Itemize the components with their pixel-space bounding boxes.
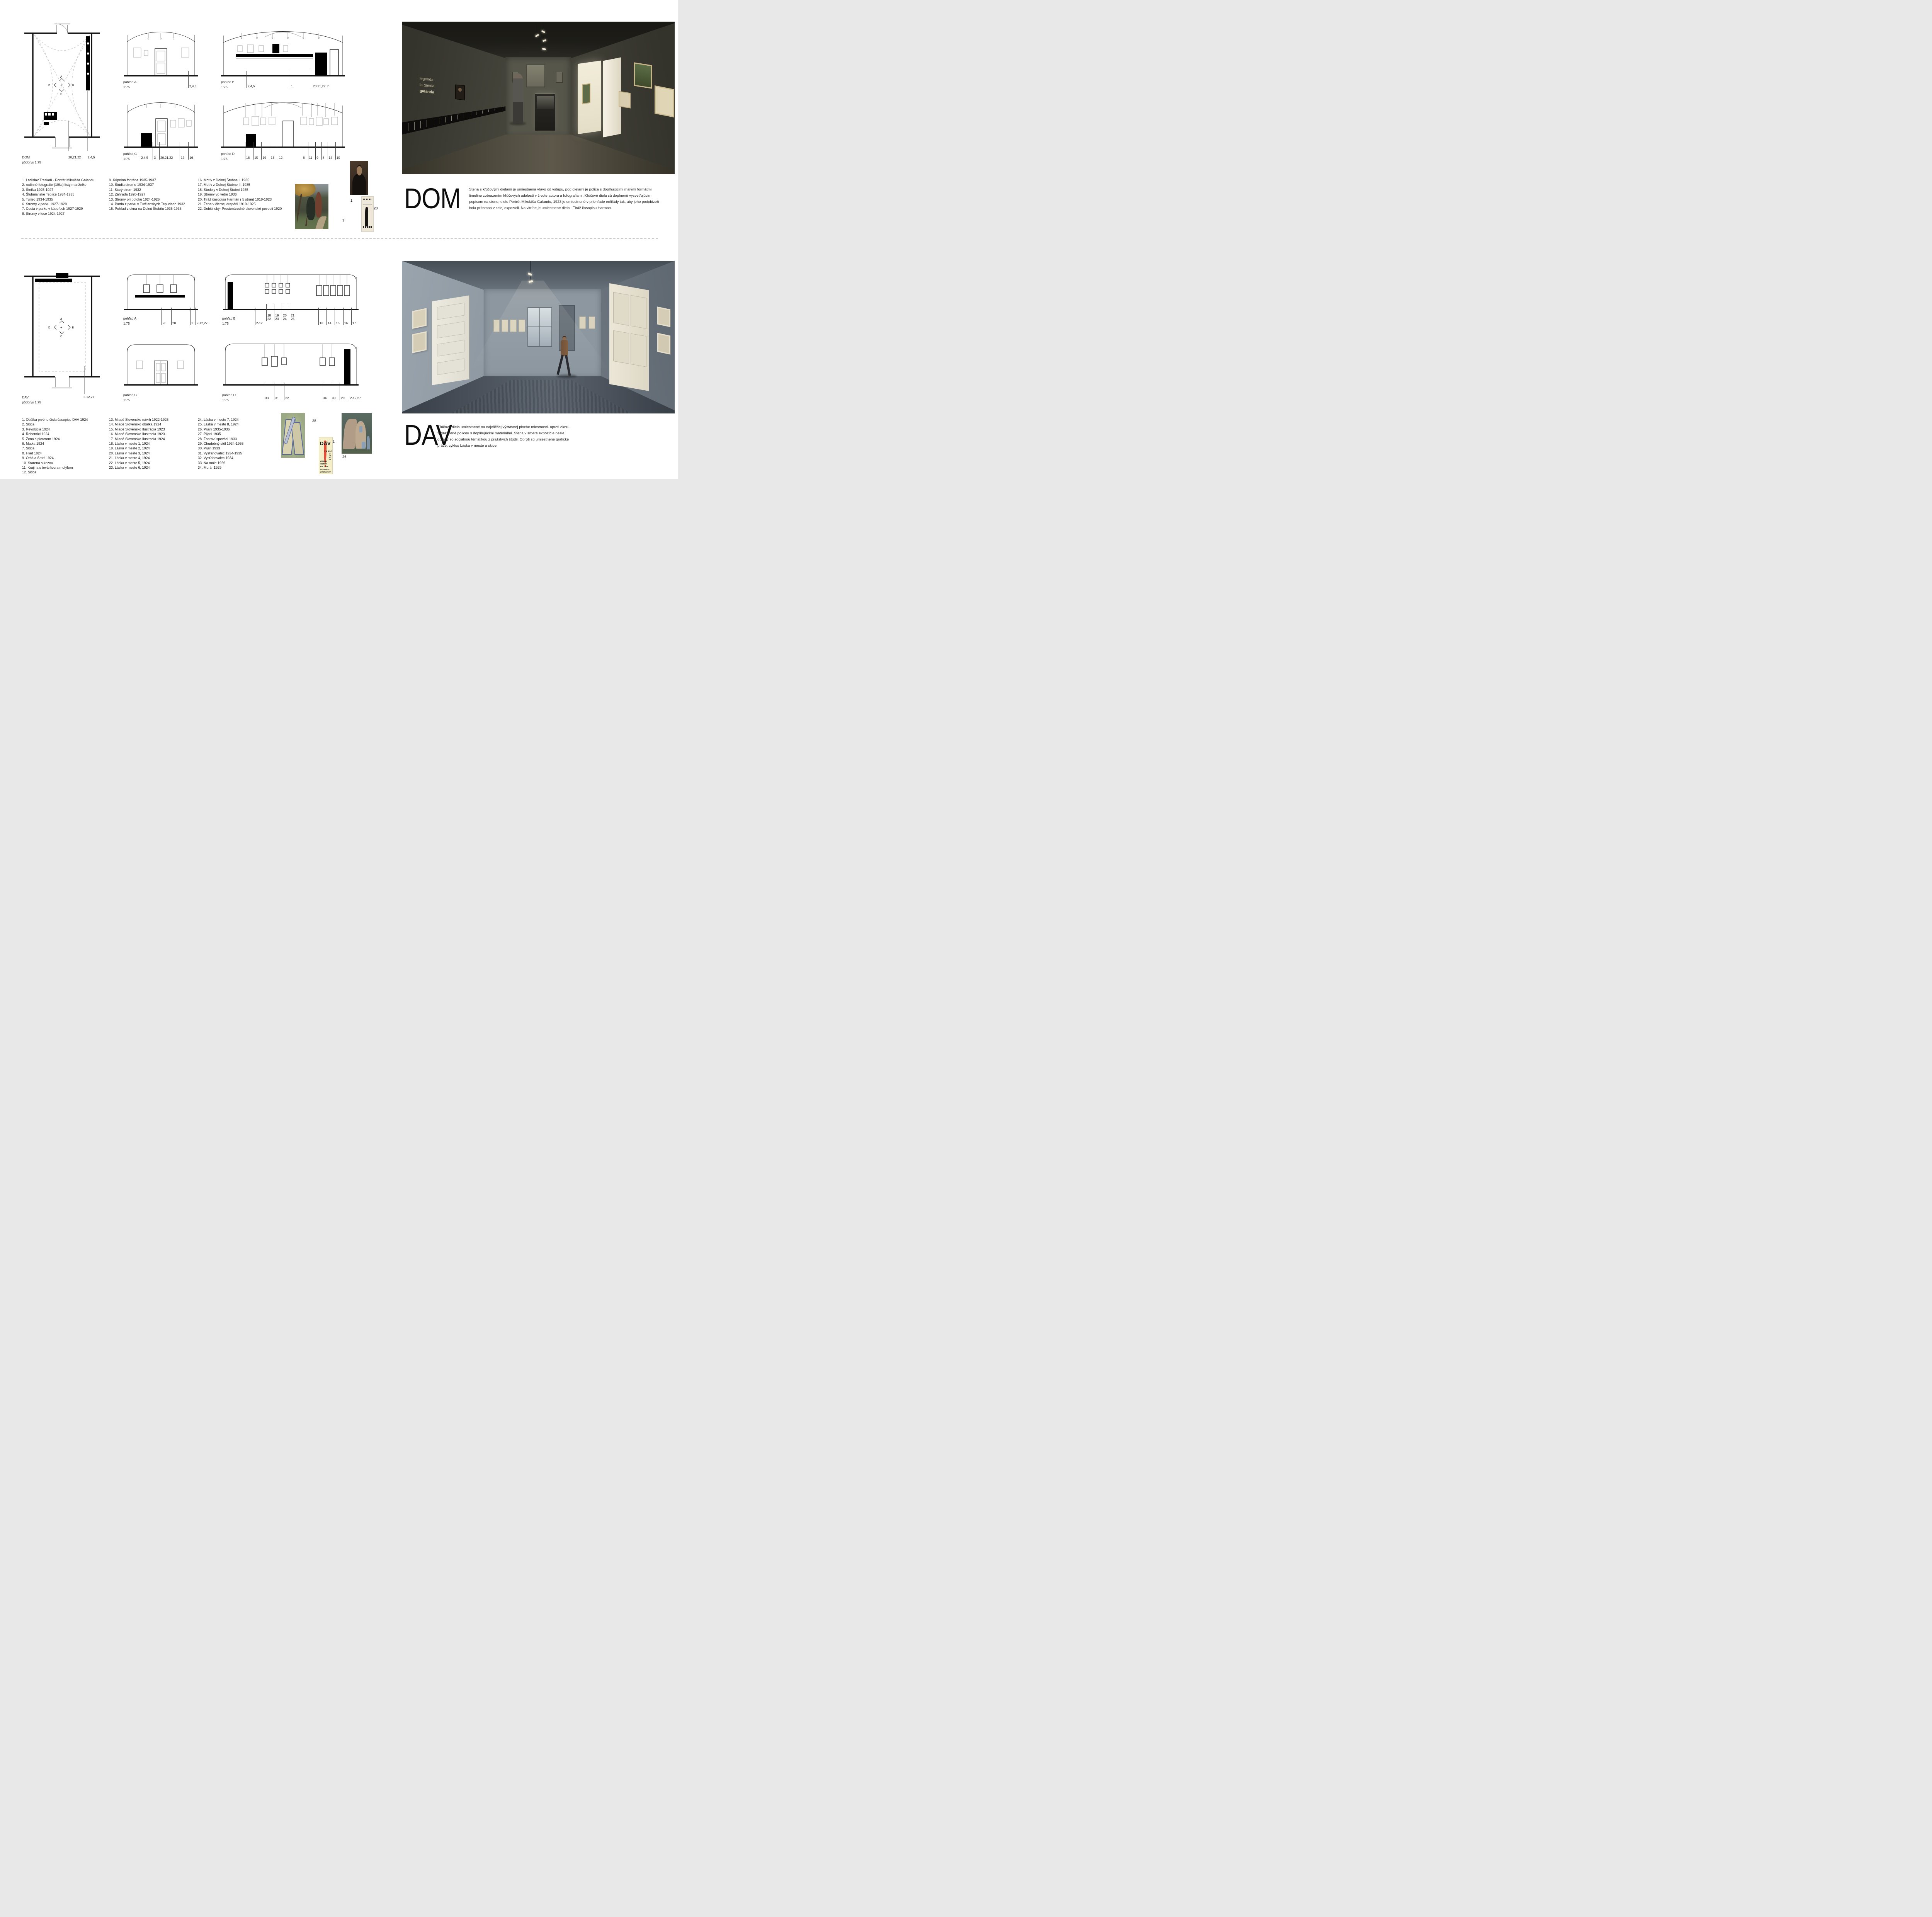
callout: 1 xyxy=(190,308,193,325)
artwork-26-thumbnail xyxy=(342,413,372,454)
svg-text:D: D xyxy=(48,83,50,87)
cover-subject: KRITIKA xyxy=(320,463,331,465)
callout: 20 24 xyxy=(282,304,286,321)
drinker-glass xyxy=(359,426,362,433)
portrait-body xyxy=(352,173,366,195)
callout: 2,4,5 xyxy=(140,142,148,160)
dav-elevation-a-callouts-2: 28 xyxy=(171,308,176,325)
small-frame xyxy=(589,316,595,329)
dom-elevation-d-callouts-2: 611981410 xyxy=(302,142,340,160)
callout: 32 xyxy=(284,383,289,400)
work-item: 15. Mladé Slovensko Ilustrácia 1923 xyxy=(109,427,168,432)
work-item: 10. Štúdia stromu 1934-1937 xyxy=(109,182,185,187)
callout: 13 xyxy=(318,308,323,325)
callout: 2-12,27 xyxy=(349,383,361,400)
callout: 10 xyxy=(335,142,340,160)
artwork-20-number: 20 xyxy=(374,206,378,211)
work-item: 25. Láska v meste 8, 1924 xyxy=(198,422,243,427)
callout: 15 xyxy=(253,142,258,160)
callout: 30 xyxy=(331,383,335,400)
work-item: 2. Skica xyxy=(22,422,88,427)
dom-elevation-c-callouts-1: 2,4,53 xyxy=(140,142,156,160)
cover-subject: LITERATURA xyxy=(320,471,331,473)
dom-elevation-d-label: pohľad D1:75 xyxy=(221,151,235,162)
svg-text:A: A xyxy=(60,75,63,79)
callout: 2-12 xyxy=(255,308,263,325)
section-separator xyxy=(21,238,658,239)
dom-elevation-c-label: pohľad C1:75 xyxy=(123,151,137,162)
dav-work-list-column-3: 24. Láska v meste 7, 192425. Láska v mes… xyxy=(198,417,243,470)
dav-elevation-b-callouts-3: 1314151617 xyxy=(318,308,356,325)
portrait-head xyxy=(357,165,362,176)
portrait-on-wall xyxy=(455,85,465,100)
work-item: 6. Stromy v parku 1927-1929 xyxy=(22,202,94,206)
dav-elevation-c-label: pohľad C1:75 xyxy=(123,393,137,403)
svg-text:C: C xyxy=(60,335,62,338)
work-item: 7. Skica xyxy=(22,446,88,451)
dom-plan-callout-1: 20,21,22 xyxy=(68,155,81,159)
work-item: 27. Pijani 1935 xyxy=(198,432,243,436)
dav-elevation-a-drawing xyxy=(123,269,199,315)
dom-section-title: DOM xyxy=(404,185,461,212)
dark-tree xyxy=(306,197,315,220)
callout: 7 xyxy=(326,71,329,88)
callout: 17 xyxy=(180,142,184,160)
artwork-28-thumbnail xyxy=(281,413,305,458)
display-vitrine xyxy=(535,94,555,131)
dom-work-list-column-1: 1. Ladislav Treskoň - Portrét Mikuláša G… xyxy=(22,178,94,216)
dav-elevation-b-label: pohľad B1:75 xyxy=(222,316,236,326)
back-window xyxy=(526,65,545,87)
work-item: 7. Cesta v parku v kúpeľoch 1927-1929 xyxy=(22,206,94,211)
work-item: 16. Mladé Slovensko Ilustrácia 1923 xyxy=(109,432,168,436)
cover-subject: UMENIE xyxy=(320,460,331,463)
dom-plan-callout-2: 2,4,5 xyxy=(88,155,95,159)
dom-plan-compass: A B C D + xyxy=(48,75,74,96)
dom-room-render: legenda la ganda galanda xyxy=(402,22,675,174)
work-item: 8. Stromy v lese 1924-1927 xyxy=(22,211,94,216)
dav-elevation-d-callouts-2: 3430292-12,27 xyxy=(322,383,361,400)
callout: 26 xyxy=(162,308,166,325)
artwork-dav-cover-thumbnail: DAV JARO 1925 UMENIEKRITIKAPOLITIKAFILOZ… xyxy=(319,437,333,474)
work-item: 11. Starý strom 1932 xyxy=(109,187,185,192)
callout: 1 xyxy=(290,71,293,88)
dav-elevation-a-callouts-1: 26 xyxy=(162,308,166,325)
work-item: 4. Robotníci 1924 xyxy=(22,432,88,436)
framed-work-right xyxy=(657,307,670,327)
cover-subjects: UMENIEKRITIKAPOLITIKAFILOZOFIALITERATURA xyxy=(320,460,331,473)
drinker-cup xyxy=(362,442,366,449)
svg-text:+: + xyxy=(60,83,62,87)
work-item: 1. Obálka prvého čísla časopisu DAV 1924 xyxy=(22,417,88,422)
work-item: 4. Štubnianske Teplice 1934-1935 xyxy=(22,192,94,197)
work-item: 29. Chudobný stôl 1934-1936 xyxy=(198,441,243,446)
callout: 14 xyxy=(328,142,332,160)
artwork-1-number: 1 xyxy=(350,199,352,203)
dav-elevation-a-callouts-3: 1 xyxy=(190,308,193,325)
work-item: 21. Žena v čiernej drapérii 1919-1925 xyxy=(198,202,282,206)
dom-work-list-column-3: 16. Motív z Dolnej Štubne I. 193517. Mot… xyxy=(198,178,282,211)
track-light-cable xyxy=(530,261,531,282)
callout: 17 xyxy=(351,308,356,325)
dav-plan-compass: A B C D + xyxy=(48,317,74,338)
small-frame xyxy=(579,316,586,329)
print-ground xyxy=(363,226,372,228)
dav-work-list-column-1: 1. Obálka prvého čísla časopisu DAV 1924… xyxy=(22,417,88,475)
framed-sketch xyxy=(619,91,631,108)
callout: 9 xyxy=(315,142,318,160)
framed-work-left xyxy=(412,331,427,353)
svg-text:B: B xyxy=(72,83,74,87)
dom-section-description: Stena s kľúčovými dielami je umiestnená … xyxy=(469,187,664,211)
callout: 11 xyxy=(308,142,313,160)
callout: 28 xyxy=(171,308,176,325)
dav-elevation-d-callouts-1: 333132 xyxy=(264,383,289,400)
work-item: 10. Starena s kozou xyxy=(22,461,88,465)
dom-elevation-a-callouts: 2,4,5 xyxy=(188,71,196,88)
work-item: 28. Žobraví speváci 1933 xyxy=(198,437,243,441)
painting-through-door xyxy=(582,83,590,104)
svg-text:+: + xyxy=(60,326,62,330)
dom-elevation-a-drawing xyxy=(123,24,199,81)
work-item: 12. Skica xyxy=(22,470,88,475)
framed-drawing xyxy=(655,85,674,117)
callout: 19 xyxy=(261,142,266,160)
work-item: 2. rodinné fotografie (10ks) listy manže… xyxy=(22,182,94,187)
artwork-20-thumbnail xyxy=(361,196,374,232)
framed-work-left xyxy=(412,308,427,328)
open-doorway xyxy=(578,60,601,134)
left-door xyxy=(432,295,469,385)
work-item: 30. Pijan 1933 xyxy=(198,446,243,451)
dav-section-description: Kľúčové diela umiestnené na najväčšej vý… xyxy=(437,424,573,449)
work-item: 9. Kúpeľná fontána 1935-1937 xyxy=(109,178,185,182)
dom-floor-plan-drawing: A B C D + xyxy=(21,19,109,151)
dav-elevation-d-label: pohľad D1:75 xyxy=(222,393,236,403)
callout: 18 22 xyxy=(266,304,271,321)
work-item: 14. Partia z parku v Turčianskych Teplic… xyxy=(109,202,185,206)
work-item: 5. Turiec 1934-1935 xyxy=(22,197,94,202)
dav-elevation-a-callouts-4: 2-12,27 xyxy=(196,308,207,325)
callout: 19 23 xyxy=(274,304,279,321)
dav-elevation-b-callouts-1: 2-12 xyxy=(255,308,263,325)
dav-plan-label: DAVpôdorys 1:75 xyxy=(22,395,41,405)
svg-text:B: B xyxy=(72,326,74,330)
work-item: 17. Mladé Slovensko Ilustrácia 1924 xyxy=(109,437,168,441)
visitor-figure xyxy=(513,73,523,123)
callout: 2,4,5 xyxy=(188,71,196,88)
dom-work-list-column-2: 9. Kúpeľná fontána 1935-193710. Štúdia s… xyxy=(109,178,185,211)
artwork-26-number: 26 xyxy=(342,455,347,459)
work-item: 13. Stromy pri potoku 1924-1926 xyxy=(109,197,185,202)
work-item: 3. Revolúcia 1924 xyxy=(22,427,88,432)
artwork-28-number: 28 xyxy=(312,419,316,423)
work-item: 26. Pijani 1935-1936 xyxy=(198,427,243,432)
callout: 14 xyxy=(327,308,331,325)
cover-title: DAV xyxy=(320,441,331,446)
print-text-block xyxy=(363,202,372,205)
work-item: 13. Mladé Slovensko návrh 1922-1925 xyxy=(109,417,168,422)
work-item: 16. Motív z Dolnej Štubne I. 1935 xyxy=(198,178,282,182)
work-item: 12. Záhrada 1920-1927 xyxy=(109,192,185,197)
dom-elevation-b-callouts-4: 7 xyxy=(326,71,329,88)
work-item: 23. Láska v meste 6, 1924 xyxy=(109,465,168,470)
callout: 34 xyxy=(322,383,327,400)
wall-text: legenda la ganda galanda xyxy=(420,76,434,96)
back-frame xyxy=(556,72,563,83)
dav-work-list-column-2: 13. Mladé Slovensko návrh 1922-192514. M… xyxy=(109,417,168,470)
dav-elevation-b-callouts-2: 18 2219 2320 2421 25 xyxy=(266,304,294,321)
dav-elevation-c-drawing xyxy=(123,336,199,390)
callout: 29 xyxy=(340,383,344,400)
print-title-row xyxy=(363,199,372,200)
open-door-leaf xyxy=(603,57,621,137)
boy-jacket xyxy=(561,340,568,356)
work-item: 31. Vysťahovalec 1934-1935 xyxy=(198,451,243,456)
dav-floor-plan-drawing: A B C D + xyxy=(21,261,109,394)
artwork-7-number: 7 xyxy=(342,219,344,223)
work-item: 9. Oráč a Smrť 1924 xyxy=(22,456,88,460)
right-door xyxy=(609,283,649,391)
callout: 15 xyxy=(335,308,339,325)
track-light-cable xyxy=(544,22,544,49)
callout: 16 xyxy=(188,142,193,160)
callout: 18 xyxy=(245,142,250,160)
work-item: 5. Žena s pierotom 1924 xyxy=(22,437,88,441)
work-item: 22. Dobšinský- Prostonárodné slovenské p… xyxy=(198,206,282,211)
artwork-1-thumbnail xyxy=(350,161,368,195)
work-item: 24. Láska v meste 7, 1924 xyxy=(198,417,243,422)
work-item: 14. Mladé Slovensko obálka 1924 xyxy=(109,422,168,427)
cover-subject: POLITIKA xyxy=(320,465,331,468)
work-item: 3. Štefka 1925-1927 xyxy=(22,187,94,192)
framed-landscape-painting xyxy=(634,62,652,89)
work-item: 11. Krajina s továrňou a motýľom xyxy=(22,465,88,470)
work-item: 1. Ladislav Treskoň - Portrét Mikuláša G… xyxy=(22,178,94,182)
callout: 2,4,5 xyxy=(247,71,255,88)
track-light-cable xyxy=(537,22,537,36)
dom-elevation-a-label: pohľad A1:75 xyxy=(123,80,136,90)
work-item: 17. Motív z Dolnej Štubne II. 1935 xyxy=(198,182,282,187)
dom-elevation-b-callouts-3: 20,21,22 xyxy=(312,71,325,88)
artwork-dav-cover-number: 1 xyxy=(333,440,335,444)
walking-boy-figure xyxy=(560,336,569,377)
work-item: 33. Na móle 1926 xyxy=(198,461,243,465)
presentation-board: A B C D + DOMpôdorys 1:75 20,21,22 2,4,5… xyxy=(0,0,678,479)
callout: 2-12,27 xyxy=(196,308,207,325)
svg-text:C: C xyxy=(60,92,62,96)
path xyxy=(315,216,327,229)
print-figure xyxy=(365,207,368,226)
callout: 6 xyxy=(302,142,305,160)
dom-elevation-b-label: pohľad B1:75 xyxy=(221,80,235,90)
work-item: 22. Láska v meste 5, 1924 xyxy=(109,461,168,465)
work-item: 18. Láska v meste 1, 1924 xyxy=(109,441,168,446)
work-item: 19. Stromy vo vetre 1936 xyxy=(198,192,282,197)
artwork-7-thumbnail xyxy=(295,184,328,229)
drinker-bottle xyxy=(367,436,370,450)
dom-elevation-b-callouts-1: 2,4,5 xyxy=(247,71,255,88)
dom-plan-label: DOMpôdorys 1:75 xyxy=(22,155,41,165)
dav-room-render xyxy=(402,261,675,413)
callout: 13 xyxy=(270,142,274,160)
dav-plan-callout-1: 2-12,27 xyxy=(83,395,94,399)
work-item: 20. Tiráž časopisu Harmán ( 5 strán) 191… xyxy=(198,197,282,202)
red-tree xyxy=(315,192,322,218)
work-item: 19. Láska v meste 2, 1924 xyxy=(109,446,168,451)
callout: 16 xyxy=(343,308,348,325)
work-item: 8. Hlad 1924 xyxy=(22,451,88,456)
cover-season: JARO xyxy=(324,451,333,453)
work-item: 6. Matka 1924 xyxy=(22,441,88,446)
work-item: 18. Stodoly v Dolnej Štubni 1935 xyxy=(198,187,282,192)
callout: 31 xyxy=(274,383,279,400)
dav-elevation-a-label: pohľad A1:75 xyxy=(123,316,136,326)
svg-text:A: A xyxy=(60,317,63,321)
svg-text:D: D xyxy=(48,326,50,330)
callout: 33 xyxy=(264,383,269,400)
callout: 8 xyxy=(321,142,325,160)
callout: 12 xyxy=(278,142,282,160)
work-item: 20. Láska v meste 3, 1924 xyxy=(109,451,168,456)
callout: 21 25 xyxy=(290,304,294,321)
dav-elevation-d-drawing xyxy=(222,336,359,390)
callout: 3 xyxy=(153,142,156,160)
framed-work-right xyxy=(657,333,670,355)
work-item: 32. Vysťahovalec 1934 xyxy=(198,456,243,460)
dom-elevation-c-callouts-2: 20,21,22 xyxy=(159,142,173,160)
dom-elevation-d-callouts-1: 1815191312 xyxy=(245,142,282,160)
work-item: 21. Láska v meste 4, 1924 xyxy=(109,456,168,460)
dom-elevation-c-callouts-3: 1716 xyxy=(180,142,193,160)
work-item: 34. Murár 1929 xyxy=(198,465,243,470)
work-item: 15. Pohľad z okna na Dolnú Štubňu 1935-1… xyxy=(109,206,185,211)
dom-elevation-b-callouts-2: 1 xyxy=(290,71,293,88)
callout: 20,21,22 xyxy=(312,71,325,88)
cover-subject: FILOZOFIA xyxy=(320,468,331,471)
callout: 20,21,22 xyxy=(159,142,173,160)
trunks xyxy=(297,194,307,226)
